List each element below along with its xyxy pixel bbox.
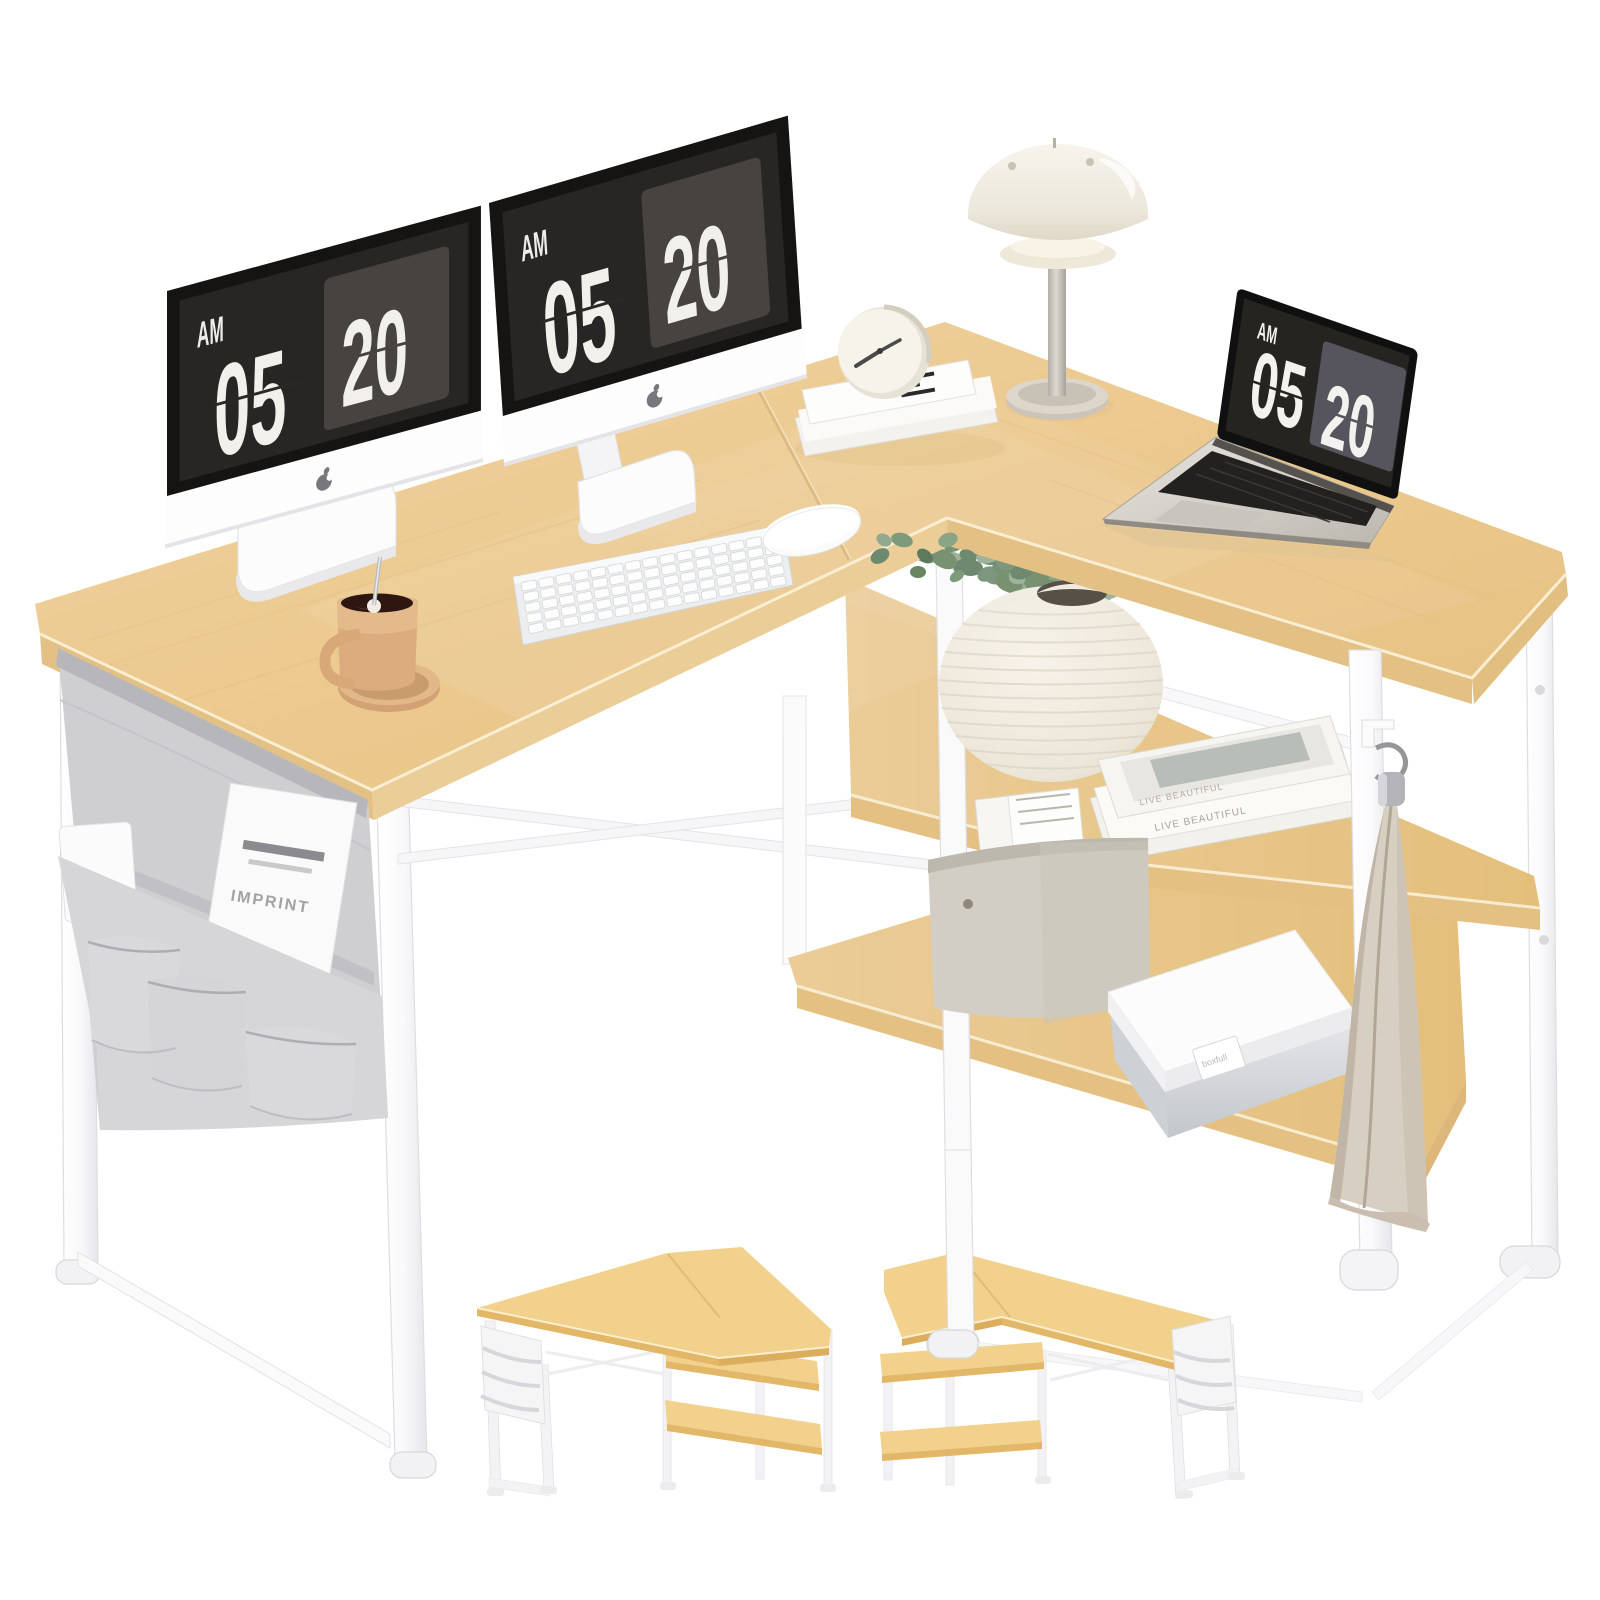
svg-text:05: 05 [538,238,620,404]
